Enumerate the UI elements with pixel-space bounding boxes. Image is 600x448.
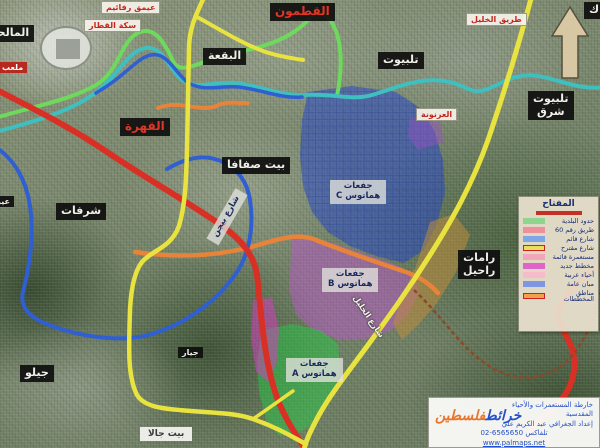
map-legend: المفتاح حدود البلديةطريق رقم 60شارع قائم… [518,196,599,332]
legend-label: طريق رقم 60 [548,227,594,234]
legend-title: المفتاح [523,200,594,210]
publisher-logo-accent: فلسطين [435,408,486,424]
legend-label: أحياء عربية [548,272,594,279]
legend-swatch [523,281,545,287]
legend-label: مناطق المخططات [548,290,594,303]
caption-phone: تلفاكس 6565650-02 [435,429,593,438]
legend-swatch [523,293,545,299]
badge-beit-safafa: بيت صفافا [222,157,290,174]
badge-begin-road: شارع بيجن [206,188,247,245]
badge-railway: سكة القطار [84,19,141,32]
badge-gilo: جيلو [20,365,54,382]
legend-title-underline [536,211,582,215]
legend-swatch [523,245,545,251]
legend-row: مستعمرة قائمة [523,254,594,261]
legend-rows: حدود البلديةطريق رقم 60شارع قائمشارع مقت… [523,218,594,303]
legend-row: مخطط جديد [523,263,594,270]
legend-label: مستعمرة قائمة [548,254,594,261]
badge-malha: المالحة [0,25,34,42]
badge-giyar: جيار [178,347,203,358]
badge-arnona: العرنونة [416,108,457,121]
badge-beit-jala: بيت جالا [140,427,192,441]
badge-corner: ك [584,2,600,19]
legend-row: مناطق المخططات [523,290,594,303]
legend-swatch [523,272,545,278]
badge-qahira: القهرة [120,118,170,136]
map-canvas: المالحةملعبعيمق رفائيمسكة القطارالقطمونك… [0,0,600,448]
badge-hebron-road: طريق الخليل [466,13,527,26]
legend-label: شارع مقترح [548,245,594,252]
legend-label: حدود البلدية [548,218,594,225]
badge-layer: المالحةملعبعيمق رفائيمسكة القطارالقطمونك… [0,0,600,448]
publisher-logo: خرائطفلسطين [435,408,521,424]
label-hebron-road-south: شارع الخليل [351,294,386,340]
legend-row: أحياء عربية [523,272,594,279]
badge-stadium: ملعب [0,62,27,73]
legend-swatch [523,236,545,242]
badge-emek-refaim: عيمق رفائيم [101,1,160,14]
legend-label: مبان عامة [548,281,594,288]
legend-swatch [523,254,545,260]
legend-row: حدود البلدية [523,218,594,225]
legend-swatch [523,227,545,233]
legend-row: طريق رقم 60 [523,227,594,234]
legend-label: شارع قائم [548,236,594,243]
caption-url[interactable]: www.palmaps.net [435,439,593,448]
badge-baqaa: البقعة [203,48,246,65]
badge-ramat-rachel: راماتراحيل [458,250,500,279]
badge-sharafat: شرفات [56,203,106,220]
badge-givat-hamatos-b: جفعاتهماتوس B [322,268,378,292]
badge-givat-hamatos-c: جفعاتهماتوس C [330,180,386,204]
badge-talpiot-east: تلبيوتشرق [528,91,574,120]
legend-swatch [523,218,545,224]
legend-label: مخطط جديد [548,263,594,270]
badge-qatamon: القطمون [270,3,335,21]
legend-row: شارع مقترح [523,245,594,252]
badge-ein-edge: عين [0,196,14,207]
badge-talpiot: تلبيوت [378,52,424,69]
legend-row: مبان عامة [523,281,594,288]
legend-swatch [523,263,545,269]
legend-row: شارع قائم [523,236,594,243]
badge-givat-hamatos-a: جفعاتهماتوس A [286,358,343,382]
publisher-logo-main: خرائط [486,408,522,424]
caption-box: خرائطفلسطين خارطة المستعمرات والأحياء ال… [428,397,600,448]
